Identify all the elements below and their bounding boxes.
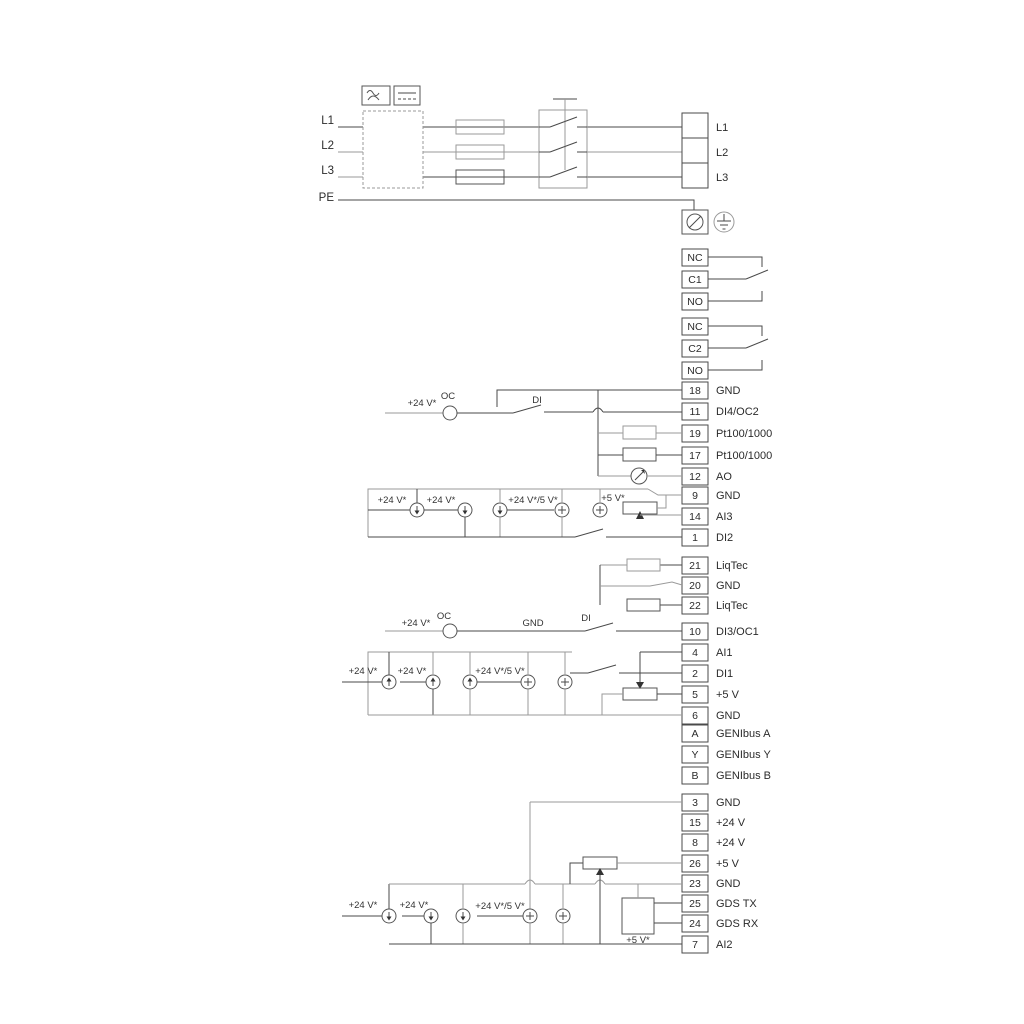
terminal-cell-out-l2	[682, 138, 708, 163]
di4-switch-blade	[513, 405, 541, 413]
terminal-num-10: 10	[689, 626, 701, 638]
relay1-nc-label: NC	[687, 252, 703, 264]
oc-output-icon	[443, 406, 457, 420]
relay2-contact-symbol	[708, 326, 768, 370]
terminal-cell-out-l1	[682, 113, 708, 138]
terminal-num-6: 6	[692, 710, 698, 722]
plus24-label: +24 V*	[427, 495, 456, 506]
ai3-di2-wiring: +24 V* +24 V* +24 V*/5 V* +5 V*	[368, 489, 682, 537]
terminal-num-14: 14	[689, 511, 701, 523]
current-source-up-icon	[463, 675, 477, 689]
current-source-down-icon	[382, 909, 396, 923]
liqtec-block: 21 LiqTec 20 GND 22 LiqTec	[600, 557, 748, 614]
current-source-down-icon	[410, 503, 424, 517]
oc-label: OC	[437, 611, 451, 622]
terminal-num-3: 3	[692, 797, 698, 809]
power-section: L1 L2 L3 PE	[319, 86, 734, 234]
io-block2: 10 DI3/OC1 4 AI1 2 DI1 5 +5 V 6 GND A GE…	[682, 623, 771, 784]
di2-switch-blade	[575, 529, 603, 537]
voltage-source-plus-icon	[556, 909, 570, 923]
ai2-gds-wiring: +24 V* +24 V* +24 V*/5 V*	[342, 802, 682, 946]
power-out-l1-label: L1	[716, 122, 728, 134]
plus5-label: +5 V*	[601, 493, 625, 504]
current-source-down-icon	[456, 909, 470, 923]
terminal-label-4: AI1	[716, 647, 733, 659]
power-in-l1-label: L1	[321, 115, 334, 127]
switch-blade-l2	[539, 142, 587, 152]
plus24-5-label: +24 V*/5 V*	[475, 901, 525, 912]
potentiometer-symbol	[570, 857, 682, 884]
current-source-down-icon	[493, 503, 507, 517]
di-label: DI	[532, 395, 542, 406]
terminal-label-15: +24 V	[716, 817, 746, 829]
terminal-num-17: 17	[689, 450, 701, 462]
terminal-num-b: B	[691, 770, 698, 782]
terminal-label-10: DI3/OC1	[716, 626, 759, 638]
terminal-label-1: DI2	[716, 532, 733, 544]
plus24-label: +24 V*	[349, 900, 378, 911]
plus24-label: +24 V*	[398, 666, 427, 677]
terminal-label-26: +5 V	[716, 858, 740, 870]
terminal-num-1: 1	[692, 532, 698, 544]
power-pe-label: PE	[319, 192, 335, 204]
plus24-5-label: +24 V*/5 V*	[475, 666, 525, 677]
di3-oc1-wiring: +24 V* OC GND DI	[385, 611, 682, 638]
terminal-num-19: 19	[689, 428, 701, 440]
switch-blade-l3	[539, 167, 587, 177]
terminal-num-8: 8	[692, 837, 698, 849]
ai1-di1-wiring: +24 V* +24 V* +24 V*/5 V*	[342, 652, 682, 715]
screw-terminal-icon	[682, 210, 708, 234]
relay2-c-label: C2	[688, 343, 702, 355]
ac-symbol-icon	[362, 86, 390, 105]
terminal-label-2: DI1	[716, 668, 733, 680]
voltage-source-plus-icon	[593, 503, 607, 517]
relay1-no-label: NO	[687, 296, 703, 308]
terminal-label-7: AI2	[716, 939, 733, 951]
gds-sensor-box: +5 V*	[622, 884, 682, 946]
power-input-wires	[338, 127, 694, 210]
relay2-section: NC C2 NO	[682, 318, 768, 379]
di4-oc2-wiring: +24 V* OC DI	[385, 390, 682, 484]
dc-symbol-icon	[394, 86, 420, 105]
terminal-num-21: 21	[689, 560, 701, 572]
relay1-contact-symbol	[708, 257, 768, 301]
terminal-label-11: DI4/OC2	[716, 406, 759, 418]
io-block1: 18 GND 11 DI4/OC2 19 Pt100/1000 17 Pt100…	[682, 382, 772, 546]
switch-blade-l1	[539, 117, 587, 127]
oc-output-icon	[443, 624, 457, 638]
terminal-num-23: 23	[689, 878, 701, 890]
terminal-num-26: 26	[689, 858, 701, 870]
plus24-label: +24 V*	[402, 618, 431, 629]
terminal-label-12: AO	[716, 471, 732, 483]
power-out-l2-label: L2	[716, 147, 728, 159]
terminal-num-a: A	[691, 728, 698, 740]
terminal-label-24: GDS RX	[716, 918, 759, 930]
terminal-label-a: GENIbus A	[716, 728, 771, 740]
terminal-label-25: GDS TX	[716, 898, 757, 910]
terminal-num-9: 9	[692, 490, 698, 502]
terminal-label-21: LiqTec	[716, 560, 748, 572]
terminal-label-y: GENIbus Y	[716, 749, 771, 761]
potentiometer-symbol	[602, 688, 682, 715]
terminal-num-4: 4	[692, 647, 698, 659]
oc-label: OC	[441, 391, 455, 402]
voltage-source-plus-icon	[523, 909, 537, 923]
terminal-num-11: 11	[690, 406, 701, 418]
wiring-diagram: L1 L2 L3 PE	[0, 0, 1024, 1024]
power-in-l2-label: L2	[321, 140, 334, 152]
terminal-label-3: GND	[716, 797, 741, 809]
power-in-l3-label: L3	[321, 165, 334, 177]
voltage-source-plus-icon	[558, 675, 572, 689]
terminal-num-18: 18	[689, 385, 701, 397]
earth-ground-icon	[714, 212, 734, 232]
di1-switch-blade	[588, 665, 616, 673]
terminal-label-14: AI3	[716, 511, 733, 523]
voltage-source-plus-icon	[555, 503, 569, 517]
terminal-label-19: Pt100/1000	[716, 428, 772, 440]
terminal-label-5: +5 V	[716, 689, 740, 701]
current-source-up-icon	[426, 675, 440, 689]
terminal-num-25: 25	[689, 898, 701, 910]
terminal-label-9: GND	[716, 490, 741, 502]
plus24-5-label: +24 V*/5 V*	[508, 495, 558, 506]
relay2-no-label: NO	[687, 365, 703, 377]
terminal-label-22: LiqTec	[716, 600, 748, 612]
io-block3: 3 GND 15 +24 V 8 +24 V 26 +5 V 23 GND 25…	[682, 794, 759, 953]
gnd-rail	[389, 880, 682, 884]
terminal-num-2: 2	[692, 668, 698, 680]
terminal-label-8: +24 V	[716, 837, 746, 849]
voltage-source-plus-icon	[521, 675, 535, 689]
current-source-up-icon	[382, 675, 396, 689]
relay2-nc-label: NC	[687, 321, 703, 333]
terminal-num-22: 22	[689, 600, 701, 612]
terminal-label-6: GND	[716, 710, 741, 722]
terminal-num-24: 24	[689, 918, 701, 930]
contactor-switch	[539, 99, 587, 188]
terminal-label-b: GENIbus B	[716, 770, 771, 782]
terminal-num-12: 12	[689, 471, 701, 483]
terminal-num-15: 15	[689, 817, 701, 829]
terminal-label-17: Pt100/1000	[716, 450, 772, 462]
di-label: DI	[581, 613, 591, 624]
liqtec-resistor-1	[627, 559, 660, 571]
plus24-label: +24 V*	[349, 666, 378, 677]
pt100-resistor-1	[623, 426, 656, 439]
relay1-section: NC C1 NO	[682, 249, 768, 310]
terminal-label-23: GND	[716, 878, 741, 890]
current-source-down-icon	[424, 909, 438, 923]
power-out-l3-label: L3	[716, 172, 728, 184]
terminal-num-5: 5	[692, 689, 698, 701]
terminal-num-y: Y	[691, 749, 698, 761]
gnd-label: GND	[522, 618, 543, 629]
terminal-label-18: GND	[716, 385, 741, 397]
current-source-down-icon	[458, 503, 472, 517]
liqtec-resistor-2	[627, 599, 660, 611]
emc-filter-box	[363, 111, 423, 188]
terminal-num-7: 7	[692, 939, 698, 951]
plus24-label: +24 V*	[378, 495, 407, 506]
pt100-resistor-2	[623, 448, 656, 461]
di3-switch-blade	[585, 623, 613, 631]
analog-output-gauge-icon	[631, 468, 647, 484]
terminal-cell-out-l3	[682, 163, 708, 188]
terminal-num-20: 20	[689, 580, 701, 592]
plus24-label: +24 V*	[408, 398, 437, 409]
plus24-label: +24 V*	[400, 900, 429, 911]
liqtec-sensor-wiring	[600, 559, 682, 611]
relay1-c-label: C1	[688, 274, 702, 286]
terminal-label-20: GND	[716, 580, 741, 592]
